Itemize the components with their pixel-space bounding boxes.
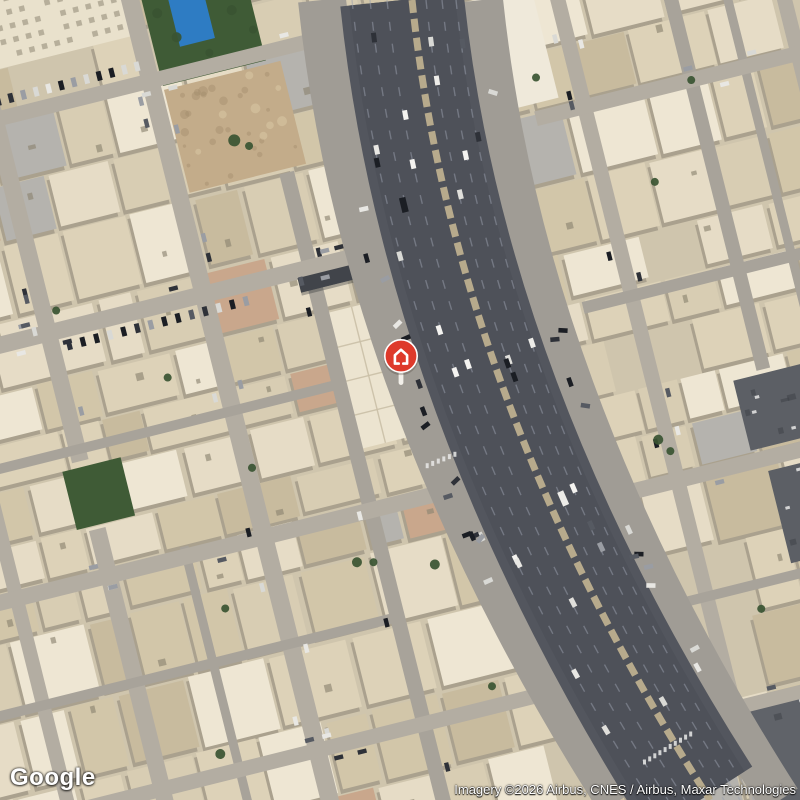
satellite-imagery — [0, 0, 800, 800]
home-marker[interactable] — [379, 334, 423, 390]
map-attribution: Imagery ©2026 Airbus, CNES / Airbus, Max… — [454, 782, 796, 797]
marker-circle — [385, 340, 417, 372]
map-viewport[interactable]: Google Imagery ©2026 Airbus, CNES / Airb… — [0, 0, 800, 800]
google-logo[interactable]: Google — [10, 764, 96, 792]
